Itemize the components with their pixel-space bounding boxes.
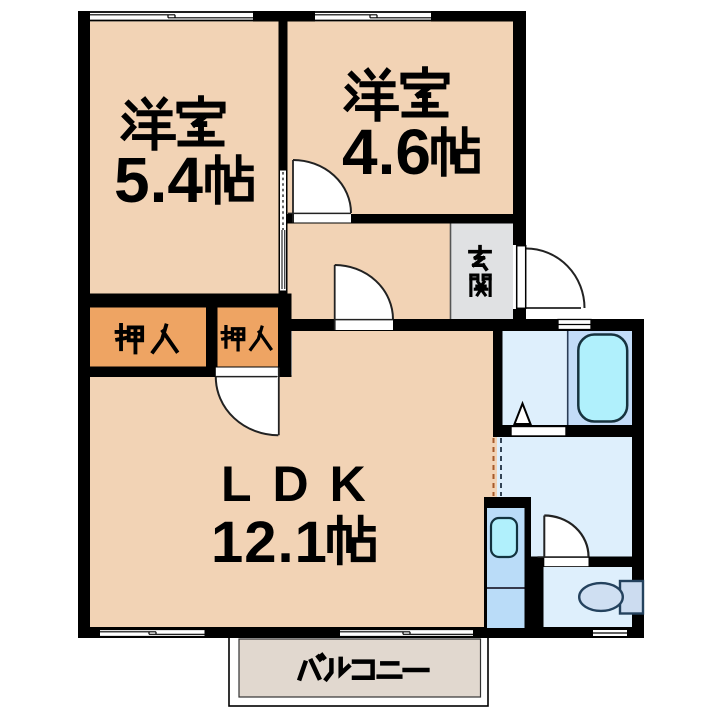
svg-text:12.1: 12.1: [211, 510, 328, 575]
svg-text:LDK: LDK: [221, 456, 387, 512]
svg-text:4.6: 4.6: [342, 116, 431, 188]
svg-text:5.4: 5.4: [114, 144, 203, 216]
